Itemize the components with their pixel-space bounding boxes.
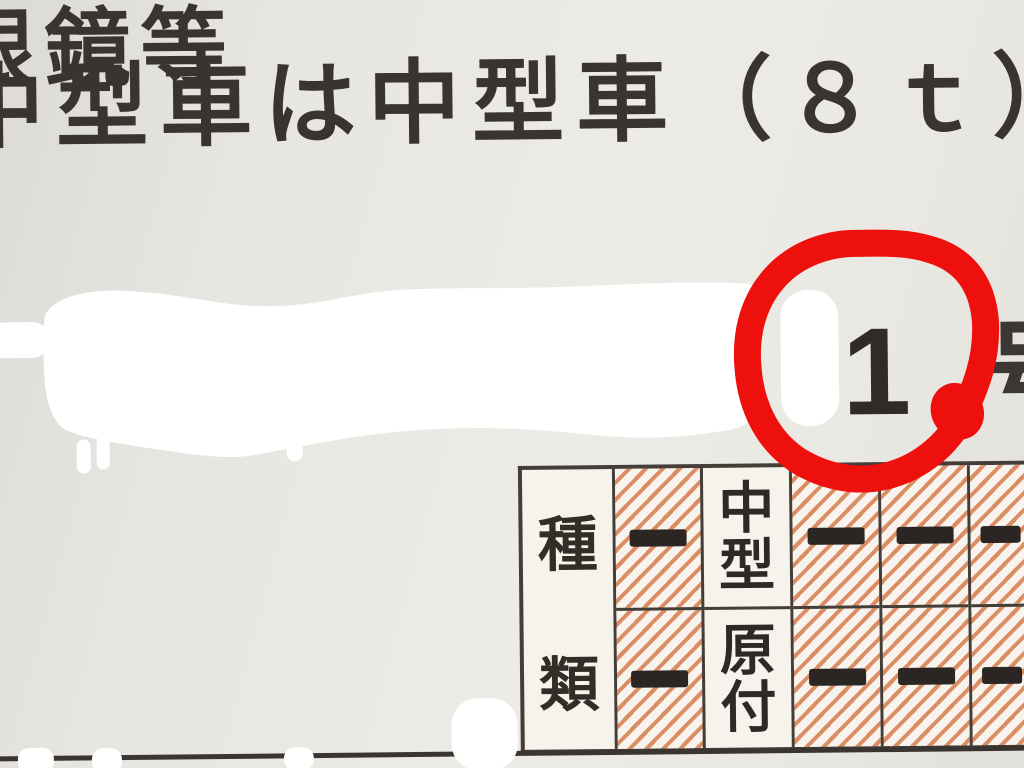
- table-cell-hatched: [882, 604, 969, 746]
- category-char: 原: [719, 621, 776, 679]
- table-header-char: 類: [523, 609, 614, 750]
- table-cell-hatched: [881, 465, 968, 604]
- white-redaction-tick: [287, 433, 303, 461]
- category-char: 付: [720, 678, 777, 736]
- table-cell-hatched: [615, 468, 701, 607]
- table-cell-category: 原付: [704, 606, 791, 748]
- dash-mark: [982, 667, 1022, 684]
- dash-mark: [807, 527, 864, 545]
- condition-text-midsize-8t: 中型車は中型車（８ｔ）: [0, 22, 1024, 167]
- table-cell-hatched: [793, 605, 880, 747]
- table-cell-hatched: [792, 466, 879, 605]
- white-redaction-main: [43, 282, 761, 459]
- license-number-digit: 1: [841, 310, 911, 435]
- license-card: 眼鏡等 中型車は中型車（８ｔ） 1 号 種類中型原付: [0, 0, 1024, 768]
- dash-mark: [897, 668, 954, 686]
- white-redaction-tick: [97, 437, 110, 469]
- dash-mark: [896, 526, 953, 544]
- table-cell-hatched: [971, 603, 1024, 746]
- category-char: 中: [718, 480, 775, 538]
- table-cell-hatched: [616, 607, 702, 749]
- dash-mark: [630, 529, 687, 547]
- white-redaction-blob: [451, 698, 518, 768]
- dash-mark: [809, 669, 866, 687]
- license-category-table: 種類中型原付: [518, 460, 1024, 754]
- table-column-1: [612, 468, 703, 749]
- table-column-5: [967, 464, 1024, 745]
- table-cell-hatched: [970, 464, 1024, 604]
- table-column-3: [789, 466, 881, 747]
- table-column-4: [878, 465, 970, 746]
- white-redaction-capsule: [780, 290, 839, 427]
- license-number-suffix: 号: [981, 318, 1024, 431]
- card-divider-line: [0, 745, 1024, 761]
- license-photo: 眼鏡等 中型車は中型車（８ｔ） 1 号 種類中型原付: [0, 0, 1024, 768]
- category-char: 型: [719, 537, 776, 595]
- table-cell-category: 中型: [703, 467, 790, 606]
- dash-mark: [631, 670, 688, 688]
- white-redaction-strip: [0, 322, 50, 359]
- table-column-2: 中型原付: [700, 467, 792, 748]
- table-header-char: 種: [522, 469, 613, 610]
- table-header-shurui: 種類: [522, 469, 615, 750]
- dash-mark: [981, 525, 1021, 542]
- white-redaction-tick: [77, 439, 91, 473]
